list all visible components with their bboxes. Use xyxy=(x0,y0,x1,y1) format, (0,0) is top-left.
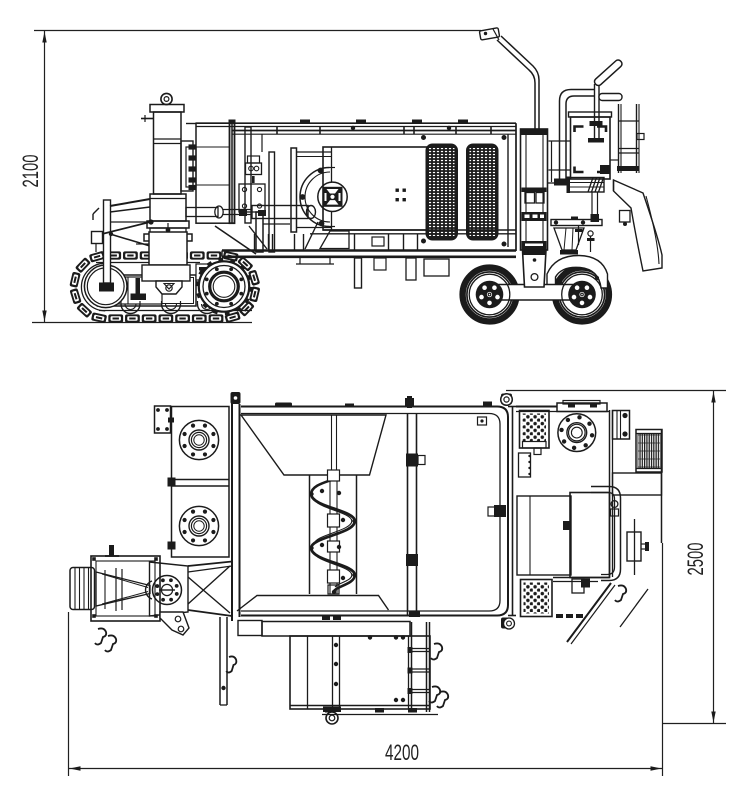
svg-text:2100: 2100 xyxy=(18,155,43,188)
svg-text:2500: 2500 xyxy=(683,543,708,576)
svg-text:4200: 4200 xyxy=(385,740,419,765)
